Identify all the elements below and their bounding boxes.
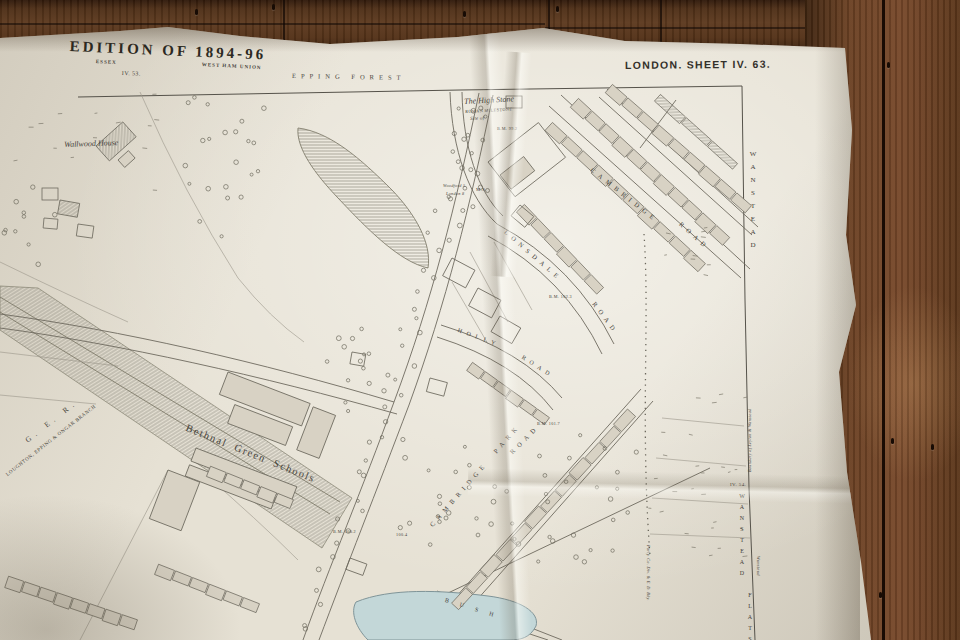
photo-of-map: EDITION OF 1894-96 LONDON. SHEET IV. 63.… <box>0 0 960 640</box>
county-label: ESSEX <box>96 59 117 65</box>
nail <box>195 9 198 15</box>
bm-label-1: B.M. 99.2 <box>497 127 518 131</box>
flats-label: FLATS <box>747 592 753 640</box>
map-border-top <box>78 86 742 97</box>
map-sheet: EDITION OF 1894-96 LONDON. SHEET IV. 63.… <box>0 0 960 640</box>
ms-label: M.S. <box>476 188 487 193</box>
bm-label-3: B.M. 101.7 <box>537 422 560 426</box>
site-of-label: Site of <box>470 116 484 122</box>
nail <box>272 4 275 10</box>
boundary-dotted-line <box>644 234 650 556</box>
sheet-adjoin-label: IV. 54. <box>730 482 746 487</box>
parly-boundary-label: Parly. Co. Div. & E. D. Bdy. <box>646 545 650 601</box>
floorboard-seam <box>882 0 885 640</box>
nail <box>556 6 559 12</box>
sheet-title: LONDON. SHEET IV. 63. <box>625 58 771 71</box>
hatched-water-strip <box>298 128 429 268</box>
wanstead-italic-label: Wanstead <box>756 556 761 576</box>
floorboard-edge <box>0 23 545 25</box>
wanstead-label-bottom: WANSTEAD <box>739 493 745 581</box>
nail <box>931 444 934 450</box>
nail <box>891 438 894 444</box>
milestone-dist-label-1: Woodford 5 <box>443 184 465 188</box>
nail <box>887 62 890 68</box>
milestone-dist-label-2: London 8 <box>446 192 464 196</box>
boundary-annotation-label: Boundary of Leyton & Wanstead <box>748 409 752 472</box>
nail <box>879 592 882 598</box>
spot-height-label: 100.4 <box>396 533 407 537</box>
sheet-ref-label: IV. 53. <box>122 70 141 77</box>
nail <box>463 11 466 17</box>
wanstead-label-top: WANSTEAD <box>749 150 756 254</box>
bm-label-2: B.M. 102.3 <box>549 295 572 299</box>
paper-corner-shadow <box>0 420 340 640</box>
